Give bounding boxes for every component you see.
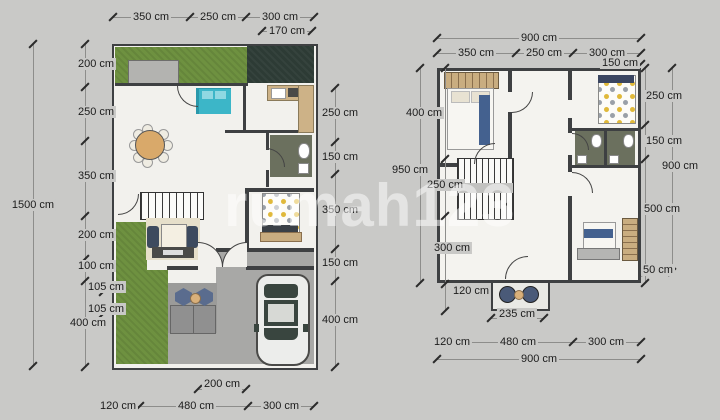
dim-label: 900 cm bbox=[660, 160, 700, 172]
dim-label: 120 cm bbox=[432, 336, 472, 348]
front-path bbox=[168, 333, 216, 364]
patio-table-icon bbox=[190, 293, 201, 304]
car-roof-panel bbox=[268, 304, 294, 322]
tv-screen bbox=[163, 250, 183, 255]
dim-label: 250 cm bbox=[425, 179, 465, 191]
double-door-arc bbox=[198, 242, 223, 267]
dim-label: 500 cm bbox=[642, 203, 682, 215]
wall bbox=[243, 83, 246, 133]
dim-label: 235 cm bbox=[497, 308, 537, 320]
dim-label: 300 cm bbox=[260, 11, 300, 23]
dim-tick bbox=[80, 362, 89, 371]
dim-label: 100 cm bbox=[76, 260, 116, 272]
dim-label: 150 cm bbox=[320, 257, 360, 269]
dim-label: 150 cm bbox=[644, 135, 684, 147]
dim-tick bbox=[309, 12, 318, 21]
dim-label: 350 cm bbox=[320, 204, 360, 216]
planter-icon bbox=[128, 60, 179, 84]
dim-label: 300 cm bbox=[432, 242, 472, 254]
bed-icon bbox=[196, 88, 231, 114]
armchair-icon bbox=[147, 226, 159, 248]
wall bbox=[245, 188, 314, 192]
car-icon bbox=[256, 274, 310, 366]
dim-label: 900 cm bbox=[519, 353, 559, 365]
dim-label: 170 cm bbox=[267, 25, 307, 37]
dim-tick bbox=[307, 26, 316, 35]
car-mirror bbox=[254, 324, 259, 332]
dim-tick bbox=[636, 354, 645, 363]
wall bbox=[568, 165, 638, 168]
car-mirror bbox=[303, 324, 308, 332]
bed-icon bbox=[598, 75, 636, 124]
bed-footer bbox=[262, 225, 298, 232]
dim-label: 400 cm bbox=[320, 314, 360, 326]
washer-icon bbox=[522, 286, 539, 303]
basin-icon bbox=[514, 290, 524, 300]
dim-tick bbox=[539, 313, 548, 322]
door-arc bbox=[118, 194, 139, 215]
dim-label: 900 cm bbox=[519, 32, 559, 44]
wardrobe-icon bbox=[444, 72, 499, 89]
dim-label: 250 cm bbox=[76, 106, 116, 118]
coffee-table-icon bbox=[161, 224, 187, 248]
bed-header bbox=[598, 75, 634, 83]
garden-strip-left bbox=[116, 222, 147, 272]
dim-label: 120 cm bbox=[98, 400, 138, 412]
dim-tick bbox=[241, 384, 250, 393]
balcony bbox=[491, 281, 550, 311]
armchair-icon bbox=[186, 226, 198, 248]
pillow bbox=[215, 91, 226, 99]
floorplan-canvas: 350 cm 250 cm 300 cm 170 cm 1500 cm 200 … bbox=[0, 0, 720, 420]
dim-tick bbox=[309, 401, 318, 410]
dim-label: 400 cm bbox=[68, 317, 108, 329]
kitchen-counter-icon bbox=[298, 85, 314, 133]
dim-label: 250 cm bbox=[524, 47, 564, 59]
toilet-icon bbox=[591, 134, 602, 148]
dim-label: 50 cm bbox=[641, 264, 675, 276]
dim-tick bbox=[28, 361, 37, 370]
dim-label: 150 cm bbox=[320, 151, 360, 163]
dining-table-icon bbox=[130, 125, 170, 165]
door-arc bbox=[512, 92, 533, 113]
stairs-icon bbox=[140, 192, 204, 220]
dim-label: 120 cm bbox=[451, 285, 491, 297]
sink bbox=[271, 88, 286, 99]
sink-icon bbox=[609, 155, 619, 164]
dim-tick bbox=[330, 362, 339, 371]
door-arc bbox=[505, 256, 528, 279]
wall bbox=[568, 155, 572, 172]
dim-tick bbox=[636, 33, 645, 42]
dim-tick bbox=[440, 306, 449, 315]
wall bbox=[508, 71, 512, 92]
blanket bbox=[479, 95, 490, 145]
wardrobe-icon bbox=[622, 218, 638, 261]
door-arc bbox=[177, 86, 198, 107]
dim-tick bbox=[415, 278, 424, 287]
ground-floor-plan bbox=[112, 44, 318, 370]
dim-label: 250 cm bbox=[320, 107, 360, 119]
bathroom-floor bbox=[607, 131, 635, 165]
dim-label: 250 cm bbox=[198, 11, 238, 23]
dim-tick bbox=[640, 278, 649, 287]
dim-label: 105 cm bbox=[86, 303, 126, 315]
cabinet-icon bbox=[577, 248, 620, 260]
sink-icon bbox=[577, 155, 587, 164]
dim-label: 300 cm bbox=[586, 336, 626, 348]
bed-icon bbox=[447, 88, 494, 150]
sink-icon bbox=[298, 163, 309, 174]
dim-label: 105 cm bbox=[86, 281, 126, 293]
wall bbox=[568, 71, 572, 100]
double-door-arc bbox=[222, 242, 247, 267]
wall bbox=[568, 196, 572, 280]
dim-label: 1500 cm bbox=[10, 199, 56, 211]
dark-garden-corner bbox=[247, 46, 314, 83]
toilet-icon bbox=[298, 143, 310, 159]
dim-tick bbox=[636, 337, 645, 346]
stairs-icon bbox=[457, 158, 514, 220]
wall bbox=[246, 266, 314, 270]
dim-label: 950 cm bbox=[390, 164, 430, 176]
dim-label: 200 cm bbox=[202, 378, 242, 390]
dim-label: 200 cm bbox=[76, 229, 116, 241]
tv-cabinet-icon bbox=[152, 247, 194, 258]
wall bbox=[245, 188, 249, 250]
wall bbox=[266, 130, 269, 150]
porch-step bbox=[170, 305, 194, 334]
car-rear-window bbox=[264, 284, 298, 298]
dim-label: 150 cm bbox=[600, 57, 640, 69]
dim-label: 350 cm bbox=[456, 47, 496, 59]
stair-run bbox=[458, 193, 513, 219]
porch-step bbox=[193, 305, 216, 334]
door-arc bbox=[572, 172, 593, 193]
dim-label: 480 cm bbox=[498, 336, 538, 348]
dim-label: 200 cm bbox=[76, 58, 116, 70]
table-top bbox=[135, 130, 165, 160]
bed-base bbox=[260, 232, 302, 242]
dim-label: 250 cm bbox=[644, 90, 684, 102]
blanket bbox=[584, 229, 613, 238]
dim-label: 350 cm bbox=[76, 170, 116, 182]
dim-label: 350 cm bbox=[131, 11, 171, 23]
dim-label: 480 cm bbox=[176, 400, 216, 412]
wall bbox=[167, 266, 198, 270]
stair-landing bbox=[458, 183, 513, 193]
wall bbox=[266, 170, 269, 187]
pillow bbox=[202, 91, 213, 99]
car-windshield bbox=[264, 328, 298, 340]
pillow bbox=[451, 91, 470, 103]
toilet-icon bbox=[623, 134, 634, 148]
dim-label: 400 cm bbox=[404, 107, 444, 119]
dim-label: 300 cm bbox=[261, 400, 301, 412]
